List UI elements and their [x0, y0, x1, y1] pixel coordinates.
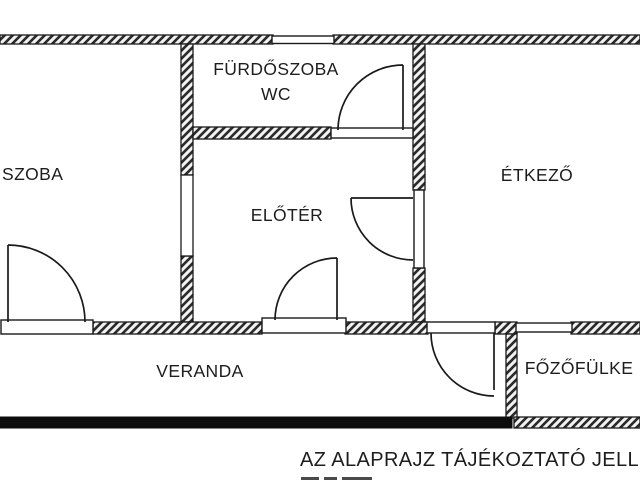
wall-top-right [333, 35, 640, 44]
floor-plan: FÜRDŐSZOBA WC SZOBA ELŐTÉR ÉTKEZŐ VERAND… [0, 0, 640, 480]
room-label-eloter: ELŐTÉR [251, 204, 323, 225]
room-label-fozofulke: FŐZŐFÜLKE [525, 357, 634, 378]
wall-szoba-eloter-lower [181, 256, 193, 322]
door-arc-szoba [8, 245, 85, 322]
window-top [272, 36, 334, 44]
wall-bottom-c [495, 322, 517, 334]
door-arc-furdoszoba [338, 65, 403, 130]
door-sill-eloter [262, 318, 346, 333]
wall-szoba-eloter-upper [181, 44, 193, 175]
wall-fozofulke-left [506, 334, 517, 418]
wall-bottom-d [571, 322, 640, 334]
door-sill-furdoszoba [331, 128, 413, 138]
room-label-szoba: SZOBA [2, 164, 63, 184]
wall-top-left [0, 35, 273, 44]
floor-plan-drawing: FÜRDŐSZOBA WC SZOBA ELŐTÉR ÉTKEZŐ VERAND… [0, 0, 640, 480]
wall-partition-segment [181, 175, 193, 256]
room-label-veranda: VERANDA [156, 361, 243, 381]
wall-eloter-etkezo-lower [413, 268, 425, 322]
wall-eloter-etkezo-upper [413, 44, 425, 190]
room-label-wc: WC [261, 84, 291, 104]
door-arc-eloter [275, 258, 337, 320]
wall-veranda-bottom [0, 417, 512, 428]
door-sill-etkezo-veranda [427, 322, 495, 333]
wall-fozofulke-bottom [514, 417, 640, 428]
openings [1, 36, 572, 334]
door-arc-etkezo [351, 198, 413, 260]
door-arc-etkezo-veranda [431, 333, 494, 396]
disclaimer-text: AZ ALAPRAJZ TÁJÉKOZTATÓ JELLEGŰ [300, 448, 640, 471]
wall-furdoszoba-eloter [193, 127, 331, 139]
room-label-furdoszoba: FÜRDŐSZOBA [213, 58, 339, 79]
wall-bottom-a [93, 322, 262, 334]
window-fozofulke [516, 323, 572, 332]
door-sill-szoba [1, 320, 93, 334]
door-sill-etkezo [414, 190, 424, 268]
room-label-etkezo: ÉTKEZŐ [501, 164, 573, 185]
wall-bottom-b [345, 322, 428, 334]
